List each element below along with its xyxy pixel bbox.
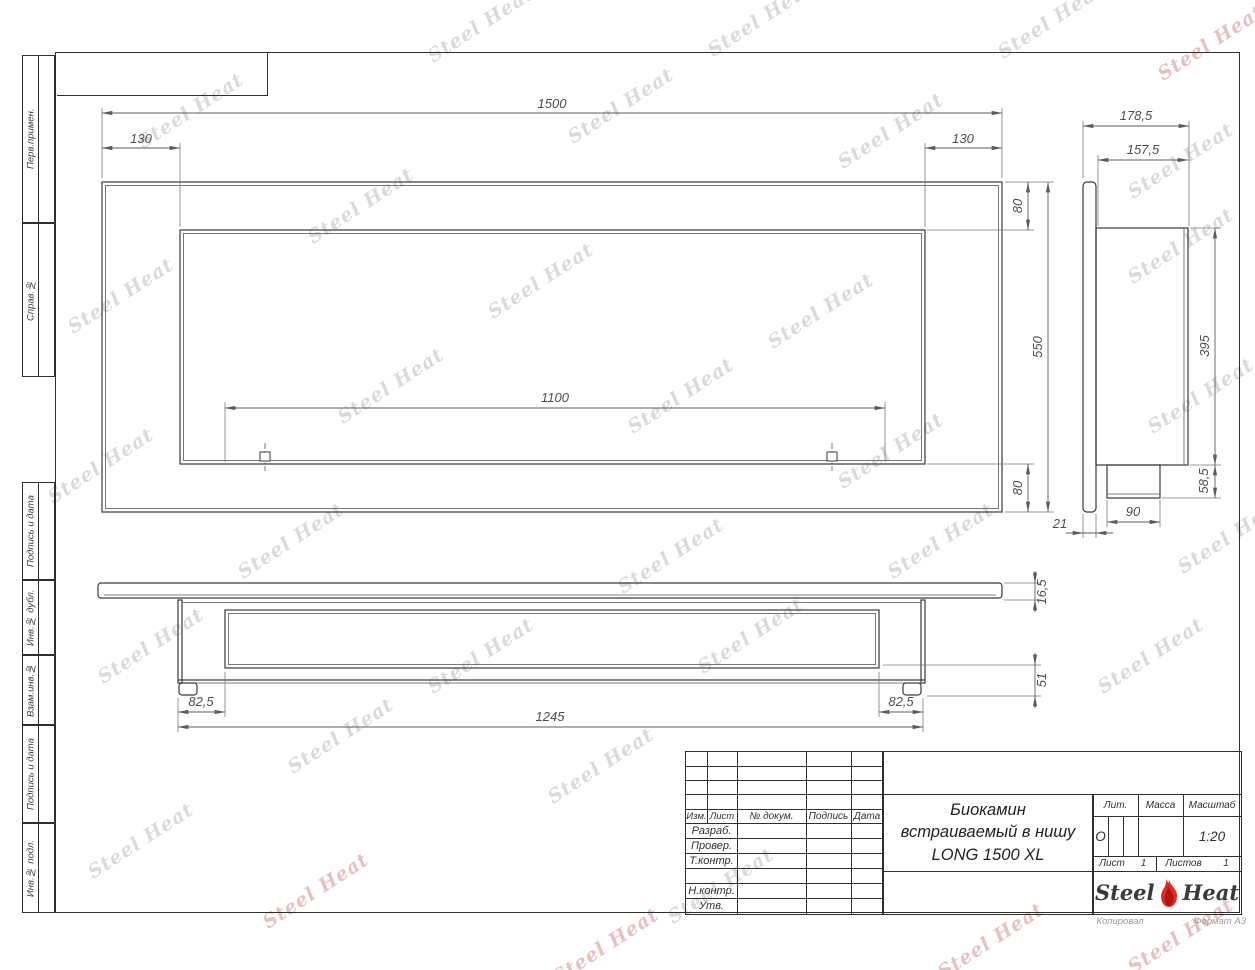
dim-label-130-right: 130 xyxy=(952,131,974,146)
logo-steel-text: Steel xyxy=(1095,880,1155,905)
dim-label-16-5: 16,5 xyxy=(1034,579,1049,605)
tb-col-izm: Изм. xyxy=(686,809,707,823)
dim-label-58-5: 58,5 xyxy=(1196,468,1211,494)
tb-sheets-value: 1 xyxy=(1211,856,1241,871)
extension-lines xyxy=(102,108,1221,732)
tb-lit-value: О xyxy=(1093,816,1108,856)
tb-scale-value: 1:20 xyxy=(1183,816,1241,856)
document-title-line2: встраиваемый в нишу xyxy=(901,821,1076,843)
side-view xyxy=(1083,182,1188,512)
drawing-sheet: Steel Heat Steel Heat Steel Heat Steel H… xyxy=(0,0,1255,970)
dim-label-1245: 1245 xyxy=(536,709,566,724)
tb-row-razrab: Разраб. xyxy=(686,823,737,838)
footer-copied-label: Копировал xyxy=(1080,916,1160,927)
tb-col-list: Лист xyxy=(707,809,737,823)
dim-label-51: 51 xyxy=(1034,673,1049,687)
dim-label-90: 90 xyxy=(1126,504,1141,519)
dim-label-395: 395 xyxy=(1197,334,1212,356)
tb-lit-label: Лит. xyxy=(1093,794,1138,816)
front-view xyxy=(102,182,1002,512)
dim-label-157-5: 157,5 xyxy=(1127,142,1160,157)
dimension-labels: 1500 130 130 80 550 80 1100 178,5 157,5 … xyxy=(130,96,1212,724)
tb-row-nkontr: Н.контр. xyxy=(686,883,737,898)
dim-label-82-5-right: 82,5 xyxy=(888,694,914,709)
document-title-line1: Биокамин xyxy=(950,799,1026,821)
tb-sheet-label: Лист xyxy=(1093,856,1131,871)
tb-row-tkontr: Т.контр. xyxy=(686,853,737,868)
dim-label-21: 21 xyxy=(1052,516,1067,531)
dim-label-1500: 1500 xyxy=(538,96,568,111)
footer-format-label: Формат А3 xyxy=(1180,916,1255,927)
title-block: Изм. Лист № докум. Подпись Дата Разраб. … xyxy=(685,751,1242,915)
tb-mass-label: Масса xyxy=(1138,794,1183,816)
top-view xyxy=(98,583,1002,695)
document-title: Биокамин встраиваемый в нишу LONG 1500 X… xyxy=(883,794,1093,871)
dim-label-550: 550 xyxy=(1030,335,1045,357)
document-title-line3: LONG 1500 XL xyxy=(932,844,1045,866)
dim-label-130-left: 130 xyxy=(130,131,152,146)
dim-label-80-bottom: 80 xyxy=(1010,480,1025,495)
dim-label-82-5-left: 82,5 xyxy=(188,694,214,709)
tb-col-podpis: Подпись xyxy=(806,809,851,823)
dim-label-178-5: 178,5 xyxy=(1120,108,1153,123)
dim-label-1100: 1100 xyxy=(541,390,570,405)
dimension-lines xyxy=(102,113,1215,727)
tb-col-data: Дата xyxy=(851,809,883,823)
fixing-tab-right xyxy=(827,443,837,471)
tb-row-utv: Утв. xyxy=(686,898,737,914)
dim-label-80-top: 80 xyxy=(1010,198,1025,213)
flame-icon xyxy=(1158,879,1180,907)
company-logo: Steel Heat xyxy=(1093,871,1241,914)
tb-row-prover: Провер. xyxy=(686,838,737,853)
tb-sheet-value: 1 xyxy=(1131,856,1156,871)
tb-scale-label: Масштаб xyxy=(1183,794,1241,816)
tb-col-ndokum: № докум. xyxy=(737,809,806,823)
fixing-tab-left xyxy=(260,443,270,471)
logo-heat-text: Heat xyxy=(1183,880,1240,905)
tb-sheets-label: Листов xyxy=(1156,856,1211,871)
